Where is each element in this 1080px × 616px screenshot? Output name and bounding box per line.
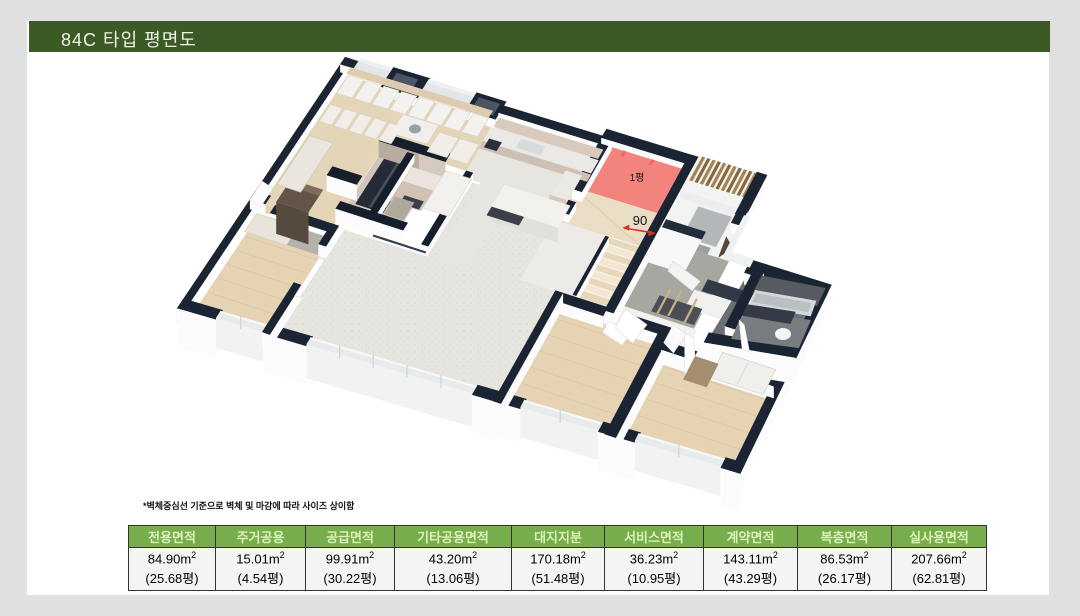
svg-text:1평: 1평	[630, 172, 645, 184]
svg-text:90: 90	[633, 213, 647, 228]
